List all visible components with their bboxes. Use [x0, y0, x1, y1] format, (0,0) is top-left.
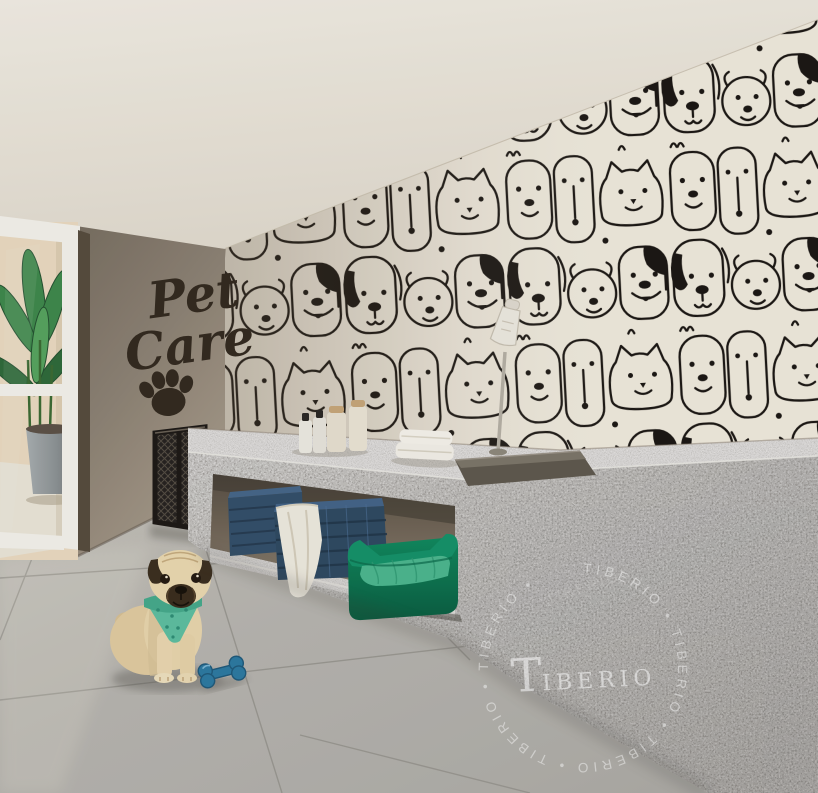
vignette	[0, 0, 818, 793]
render-canvas: Pet Care	[0, 0, 818, 793]
